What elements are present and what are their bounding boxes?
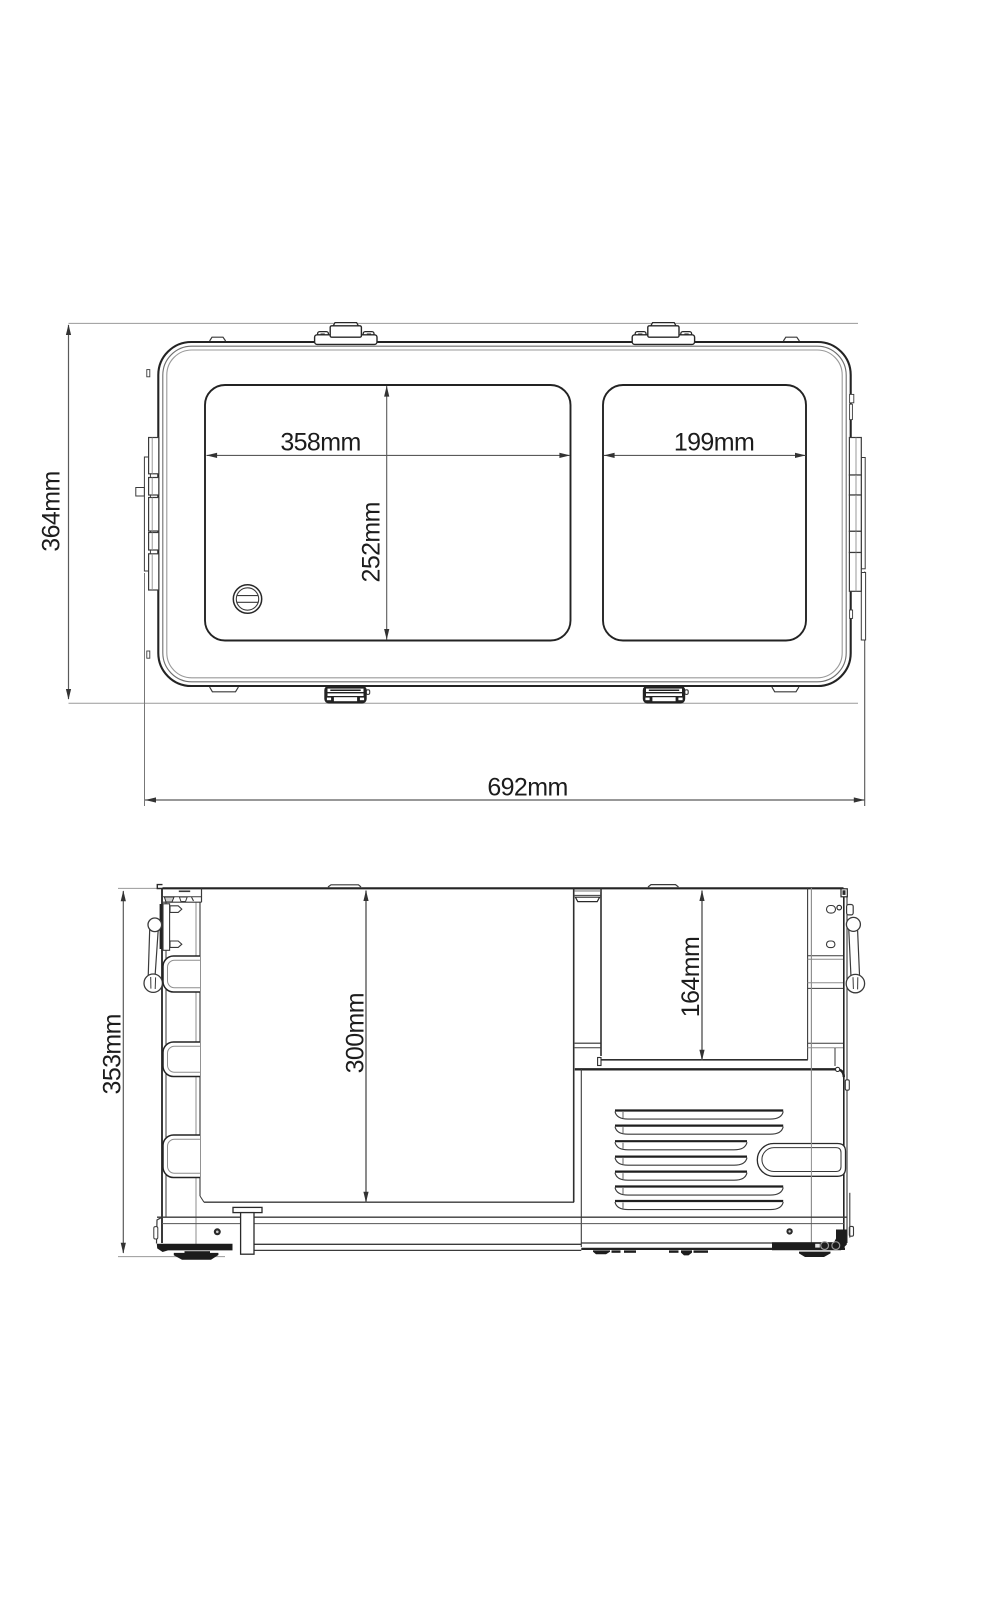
- svg-text:252mm: 252mm: [358, 502, 386, 582]
- svg-text:692mm: 692mm: [487, 774, 567, 802]
- svg-text:164mm: 164mm: [677, 937, 705, 1017]
- svg-text:364mm: 364mm: [38, 471, 66, 551]
- svg-text:353mm: 353mm: [99, 1014, 127, 1094]
- svg-text:300mm: 300mm: [342, 993, 370, 1073]
- svg-text:358mm: 358mm: [280, 429, 360, 457]
- svg-text:199mm: 199mm: [674, 429, 754, 457]
